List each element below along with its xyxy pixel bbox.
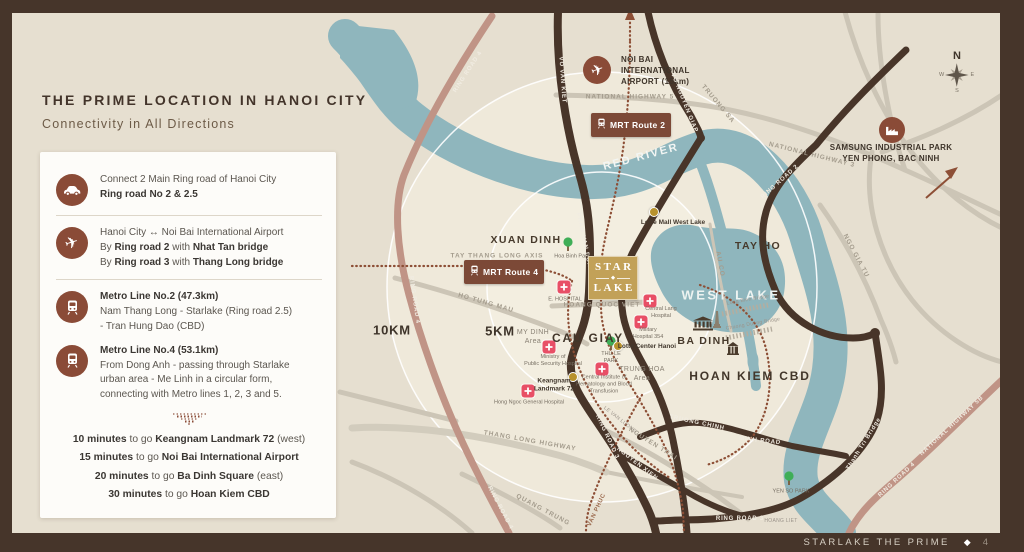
panel-item-text: Metro Line No.2 (47.3km)Nam Thang Long -… <box>100 289 292 334</box>
panel-item-text: Hanoi City ↔ Noi Bai International Airpo… <box>100 225 283 270</box>
monument-icon <box>713 311 721 333</box>
starlake-logo: STAR ◆ LAKE <box>588 256 638 300</box>
text-segment: 10 minutes <box>73 434 127 445</box>
starlake-location-infographic: NOI BAI INTERNATIONAL AIRPORT (15km)NATI… <box>0 0 1024 552</box>
compass-north-label: N <box>938 50 976 62</box>
temple-icon <box>727 342 740 360</box>
train-icon <box>597 116 606 134</box>
mrt-route-badge: MRT Route 4 <box>464 260 544 284</box>
mrt-route-badge-label: MRT Route 4 <box>483 267 538 277</box>
compass-south-label: S <box>938 88 976 94</box>
footer-page-number: 4 <box>983 537 988 548</box>
gold-dot-icon <box>568 372 578 382</box>
travel-time-row: 30 minutes to go Hoan Kiem CBD <box>56 486 322 504</box>
text-segment: to go <box>133 452 162 463</box>
bank-icon <box>693 317 713 336</box>
tree-icon <box>562 237 575 257</box>
page-subtitle: Connectivity in All Directions <box>42 117 367 131</box>
text-segment: Metro Line No.4 (53.1km) <box>100 345 218 356</box>
divider <box>56 279 322 280</box>
text-segment: urban area - Me Linh in a circular form, <box>100 374 272 385</box>
hospital-icon <box>635 316 648 329</box>
compass-east-label: E <box>969 72 976 78</box>
compass-west-label: W <box>938 72 945 78</box>
compass-rose: N W E S <box>938 50 976 94</box>
mrt-route-badge: MRT Route 2 <box>591 113 671 137</box>
divider <box>56 215 322 216</box>
train-icon <box>470 263 479 281</box>
text-segment: connecting with Metro lines 1, 2, 3 and … <box>100 389 282 400</box>
mrt-route-badge-label: MRT Route 2 <box>610 120 665 130</box>
hospital-icon <box>522 385 535 398</box>
dotted-triangle-divider-icon <box>56 413 322 426</box>
text-segment: with <box>169 242 192 253</box>
hospital-icon <box>558 281 571 294</box>
footer-brand: STARLAKE THE PRIME <box>803 537 949 548</box>
text-segment: By <box>100 242 114 253</box>
starlake-logo-line2: LAKE <box>591 282 635 295</box>
frame-top <box>0 0 1024 13</box>
panel-item-text: Metro Line No.4 (53.1km)From Dong Anh - … <box>100 343 290 403</box>
text-segment: Nam Thang Long - Starlake (Ring road 2.5… <box>100 306 292 317</box>
text-segment: Hoan Kiem CBD <box>191 489 270 500</box>
text-segment: Nhat Tan bridge <box>193 242 268 253</box>
text-segment: 20 minutes <box>95 471 149 482</box>
plane-icon: ✈ <box>56 227 88 259</box>
travel-times: 10 minutes to go Keangnam Landmark 72 (w… <box>56 431 322 503</box>
text-segment: 15 minutes <box>79 452 133 463</box>
travel-time-row: 15 minutes to go Noi Bai International A… <box>56 449 322 467</box>
text-segment: (west) <box>274 434 305 445</box>
text-segment: Metro Line No.2 (47.3km) <box>100 291 218 302</box>
diamond-divider-icon: ◆ <box>596 275 630 281</box>
text-segment: Ring road 3 <box>114 257 169 268</box>
hospital-icon <box>644 295 657 308</box>
text-segment: Hanoi City ↔ Noi Bai International Airpo… <box>100 227 283 238</box>
footer: STARLAKE THE PRIME ◆ 4 <box>0 533 990 552</box>
panel-item: ✈Hanoi City ↔ Noi Bai International Airp… <box>56 225 322 270</box>
text-segment: Ring road 2 <box>114 242 169 253</box>
gold-dot-icon <box>613 341 623 351</box>
frame-right <box>1000 0 1024 552</box>
starlake-logo-line1: STAR <box>592 261 633 274</box>
connectivity-info-panel: Connect 2 Main Ring road of Hanoi CityRi… <box>40 152 336 518</box>
text-segment: with <box>169 257 192 268</box>
panel-item: Metro Line No.2 (47.3km)Nam Thang Long -… <box>56 289 322 334</box>
text-segment: Noi Bai International Airport <box>162 452 299 463</box>
text-segment: 30 minutes <box>108 489 162 500</box>
factory-circle-icon <box>879 117 905 143</box>
header: THE PRIME LOCATION IN HANOI CITY Connect… <box>42 92 367 131</box>
diamond-icon: ◆ <box>964 537 971 548</box>
page-title: THE PRIME LOCATION IN HANOI CITY <box>42 92 367 108</box>
text-segment: Keangnam Landmark 72 <box>155 434 274 445</box>
text-segment: By <box>100 257 114 268</box>
gold-dot-icon <box>649 207 659 217</box>
text-segment: Thang Long bridge <box>193 257 284 268</box>
plane-circle-icon: ✈ <box>583 56 611 84</box>
text-segment: to go <box>149 471 178 482</box>
text-segment: Ring road No 2 & 2.5 <box>100 189 198 200</box>
hospital-icon <box>596 363 609 376</box>
train-icon <box>56 345 88 377</box>
text-segment: From Dong Anh - passing through Starlake <box>100 360 290 371</box>
text-segment: - Tran Hung Dao (CBD) <box>100 321 204 332</box>
panel-item: Connect 2 Main Ring road of Hanoi CityRi… <box>56 172 322 206</box>
travel-time-row: 20 minutes to go Ba Dinh Square (east) <box>56 468 322 486</box>
panel-item-text: Connect 2 Main Ring road of Hanoi CityRi… <box>100 172 276 203</box>
train-icon <box>56 291 88 323</box>
hospital-icon <box>543 341 556 354</box>
text-segment: to go <box>162 489 191 500</box>
panel-items: Connect 2 Main Ring road of Hanoi CityRi… <box>56 172 322 403</box>
compass-star-icon <box>945 62 969 88</box>
travel-time-row: 10 minutes to go Keangnam Landmark 72 (w… <box>56 431 322 449</box>
car-icon <box>56 174 88 206</box>
text-segment: Connect 2 Main Ring road of Hanoi City <box>100 174 276 185</box>
tree-icon <box>783 471 796 491</box>
text-segment: to go <box>127 434 156 445</box>
text-segment: Ba Dinh Square <box>177 471 254 482</box>
panel-item: Metro Line No.4 (53.1km)From Dong Anh - … <box>56 343 322 403</box>
frame-left <box>0 0 12 552</box>
text-segment: (east) <box>254 471 283 482</box>
